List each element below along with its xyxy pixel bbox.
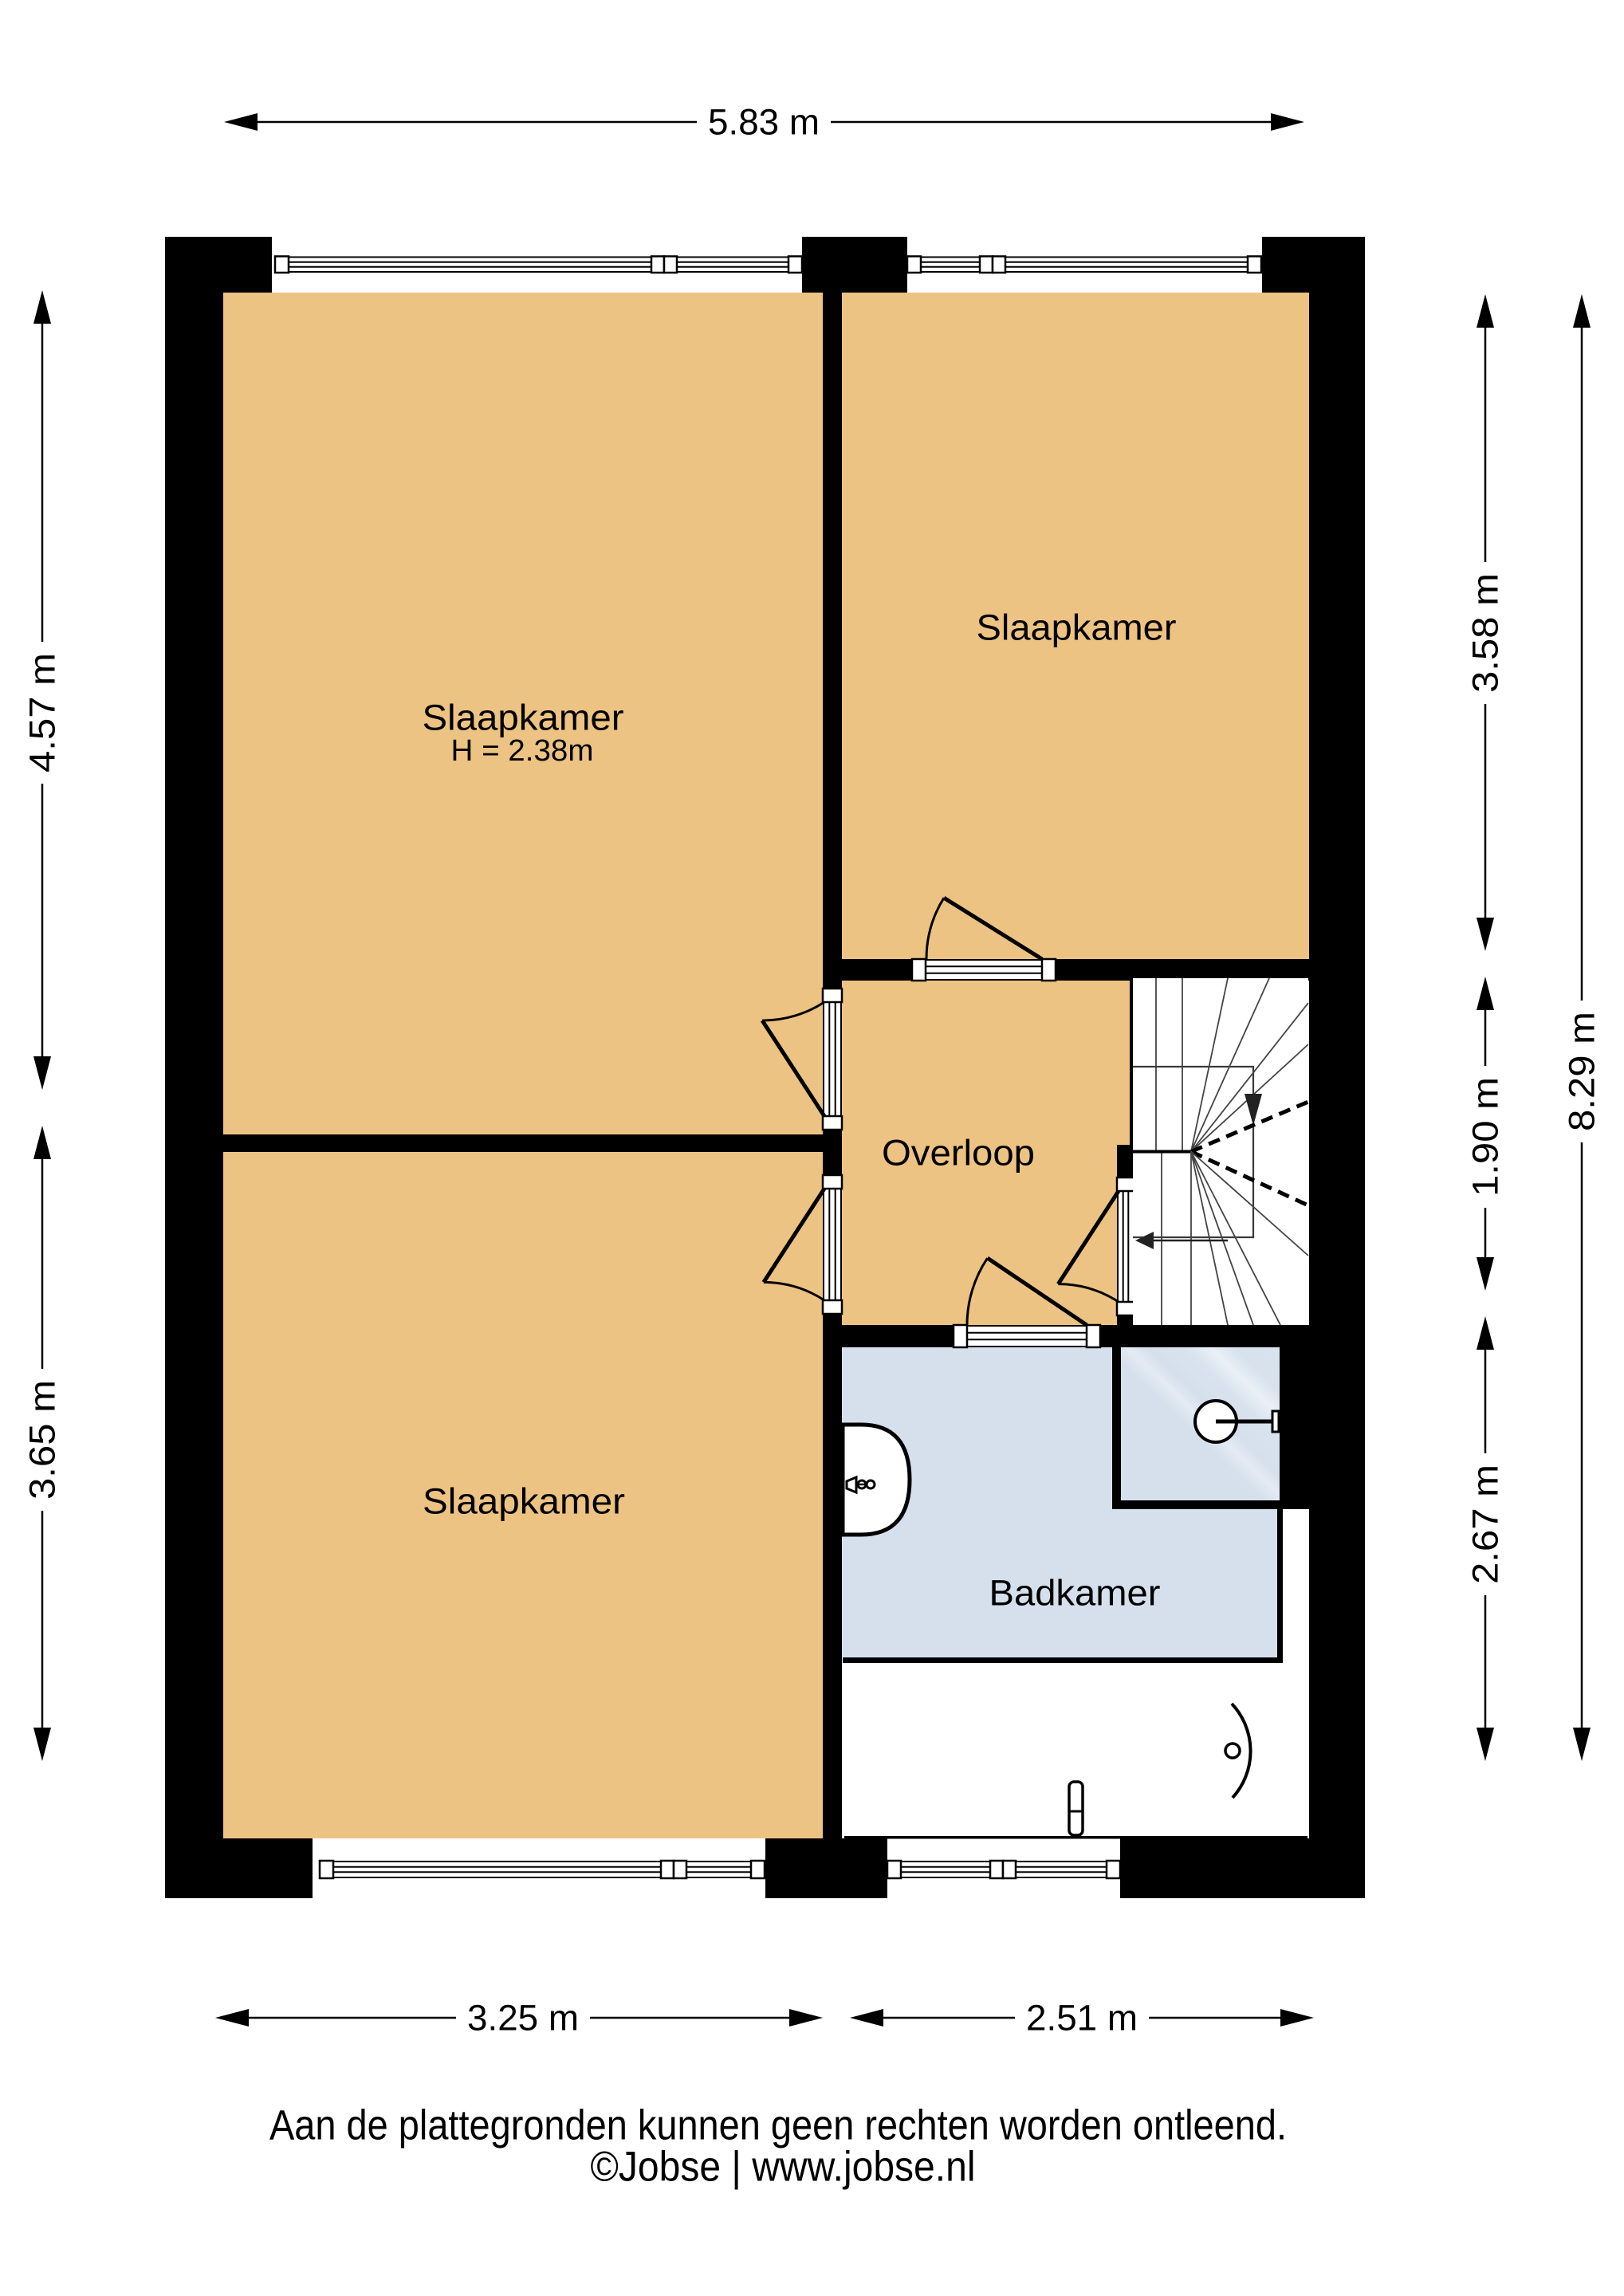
svg-text:Slaapkamer: Slaapkamer (977, 607, 1177, 648)
svg-text:H = 2.38m: H = 2.38m (451, 734, 594, 768)
svg-text:Slaapkamer: Slaapkamer (423, 1481, 625, 1522)
svg-text:3.25 m: 3.25 m (467, 1998, 579, 2038)
svg-text:Aan de plattegronden kunnen ge: Aan de plattegronden kunnen geen rechten… (269, 2102, 1287, 2149)
svg-text:5.83 m: 5.83 m (708, 102, 820, 143)
svg-text:©Jobse | www.jobse.nl: ©Jobse | www.jobse.nl (591, 2144, 976, 2191)
svg-text:3.65 m: 3.65 m (22, 1380, 63, 1500)
svg-text:3.58 m: 3.58 m (1465, 573, 1506, 693)
svg-text:2.51 m: 2.51 m (1026, 1998, 1138, 2038)
svg-text:8.29 m: 8.29 m (1562, 1012, 1602, 1131)
svg-text:1.90 m: 1.90 m (1465, 1077, 1506, 1197)
svg-text:Badkamer: Badkamer (989, 1573, 1161, 1614)
svg-text:Overloop: Overloop (882, 1133, 1035, 1174)
svg-text:2.67 m: 2.67 m (1465, 1464, 1506, 1584)
svg-text:Slaapkamer: Slaapkamer (423, 698, 624, 738)
svg-text:4.57 m: 4.57 m (22, 653, 63, 773)
